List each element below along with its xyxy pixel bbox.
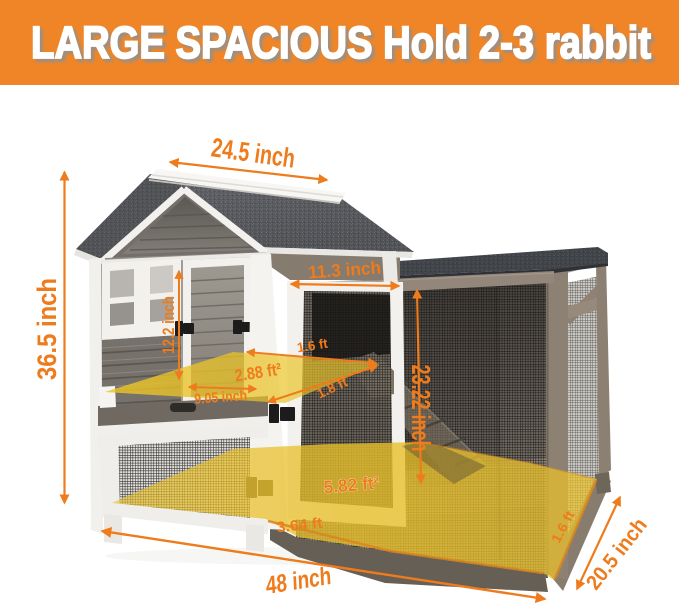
svg-text:LARGE SPACIOUS Hold 2-3 rabbit: LARGE SPACIOUS Hold 2-3 rabbit [31, 17, 651, 68]
svg-text:12.2 inch: 12.2 inch [159, 296, 178, 354]
svg-text:36.5 inch: 36.5 inch [32, 278, 62, 380]
svg-text:23.22 inch: 23.22 inch [406, 365, 436, 452]
